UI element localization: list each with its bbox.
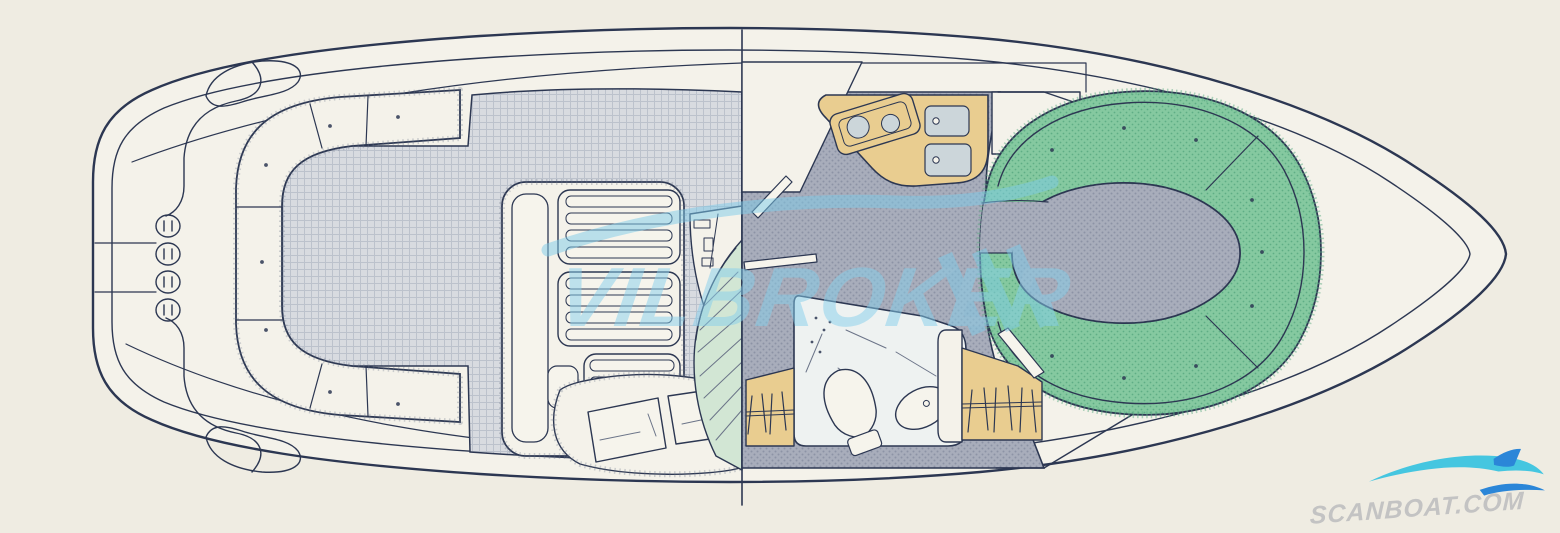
sink-basin xyxy=(925,106,969,136)
drain-icon xyxy=(933,157,939,163)
cleat-icon xyxy=(156,299,180,321)
boat-plan-drawing: VILBROKER SCANBOAT.COM xyxy=(0,0,1560,533)
cleat-icon xyxy=(156,271,180,293)
locker-port xyxy=(746,368,794,446)
center-watermark-text: VILBROKER xyxy=(552,250,1078,344)
sink-basin xyxy=(925,144,971,176)
cleat-icon xyxy=(156,215,180,237)
drain-icon xyxy=(933,118,939,124)
side-cushion-strip xyxy=(512,194,548,442)
locker-cabinet xyxy=(938,330,962,442)
cleat-icon xyxy=(156,243,180,265)
scanned-deck-plan-page: VILBROKER SCANBOAT.COM xyxy=(0,0,1560,533)
